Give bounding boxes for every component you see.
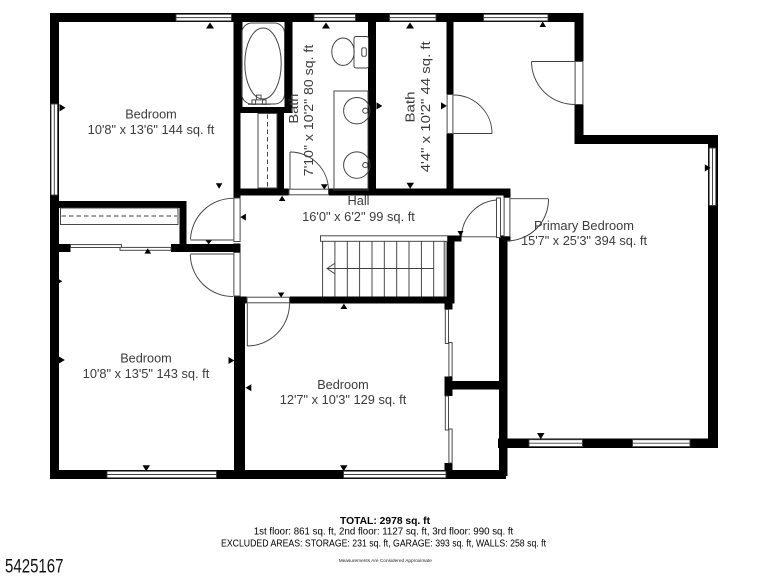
svg-text:10'8" x 13'5" 143 sq. ft: 10'8" x 13'5" 143 sq. ft [83,366,210,381]
svg-text:TOTAL: 2978 sq. ft: TOTAL: 2978 sq. ft [340,516,431,527]
svg-text:1st floor: 861 sq. ft, 2nd flo: 1st floor: 861 sq. ft, 2nd floor: 1127 s… [254,527,514,538]
svg-text:7'10" x 10'2" 80 sq. ft: 7'10" x 10'2" 80 sq. ft [301,44,316,176]
svg-text:Bath: Bath [403,92,418,123]
svg-text:4'4" x 10'2" 44 sq. ft: 4'4" x 10'2" 44 sq. ft [418,41,433,173]
svg-text:EXCLUDED AREAS: STORAGE: 231 s: EXCLUDED AREAS: STORAGE: 231 sq. ft, GAR… [221,538,546,549]
svg-text:10'8" x 13'6" 144 sq. ft: 10'8" x 13'6" 144 sq. ft [88,122,215,137]
svg-text:Measurements Are Considered Ap: Measurements Are Considered Approximate [339,558,433,564]
svg-text:15'7" x 25'3" 394 sq. ft: 15'7" x 25'3" 394 sq. ft [521,233,647,248]
svg-text:5425167: 5425167 [5,556,64,576]
svg-text:Primary Bedroom: Primary Bedroom [534,218,634,233]
svg-text:Bedroom: Bedroom [317,377,369,392]
svg-text:12'7" x 10'3" 129 sq. ft: 12'7" x 10'3" 129 sq. ft [280,392,407,407]
svg-text:16'0" x 6'2" 99 sq. ft: 16'0" x 6'2" 99 sq. ft [302,209,415,224]
svg-text:Bedroom: Bedroom [120,351,172,366]
svg-text:Bath: Bath [286,94,301,124]
svg-text:Hall: Hall [347,193,369,208]
svg-text:Bedroom: Bedroom [125,107,177,122]
